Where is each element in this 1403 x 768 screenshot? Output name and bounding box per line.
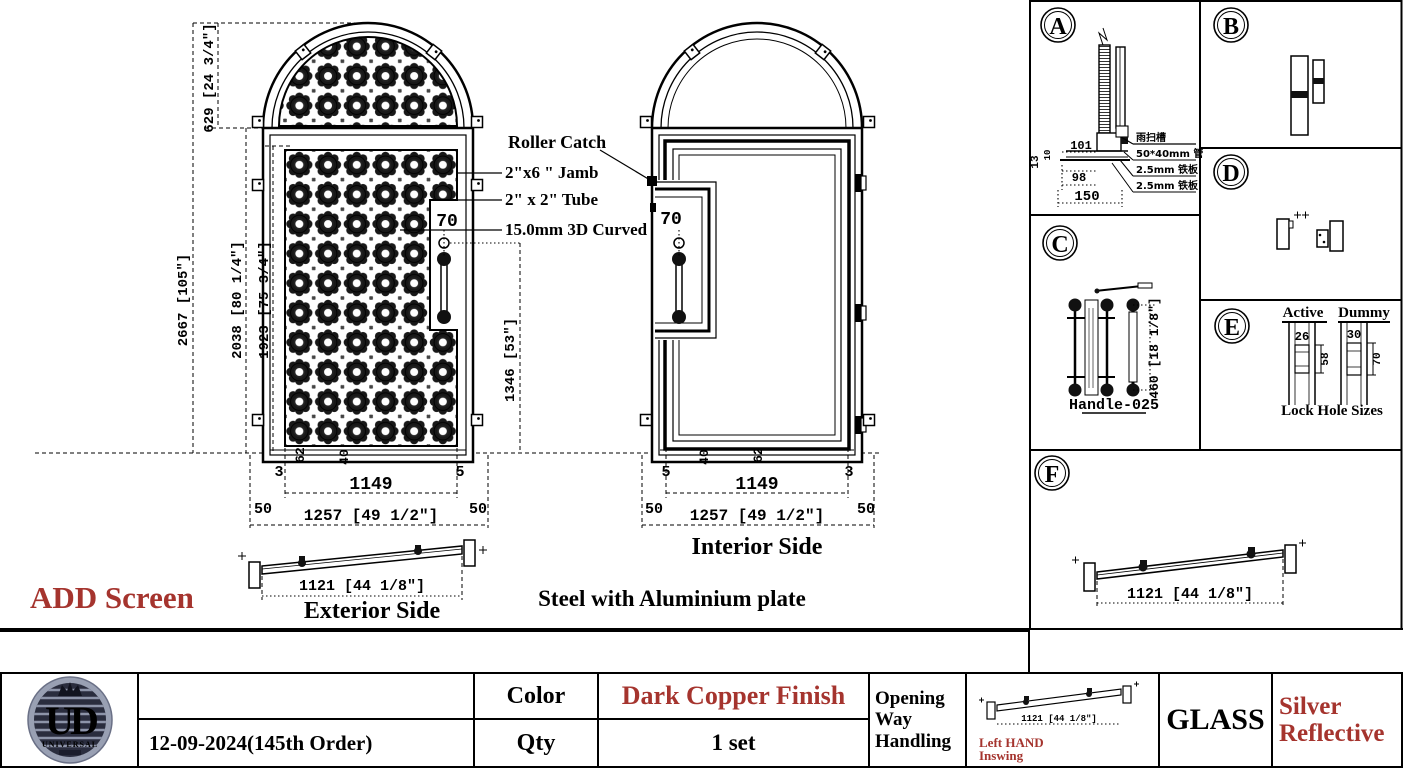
swing-line-2: Inswing [979, 749, 1044, 763]
exterior-door-drawing: 70 [253, 23, 521, 462]
add-screen-note: ADD Screen [30, 580, 194, 615]
detail-f-letter: F [1045, 462, 1060, 488]
detail-b: B [1214, 8, 1324, 135]
exterior-sill-drawing: 1121 [44 1/8"] [238, 540, 487, 600]
dummy-height-dim: 70 [1372, 352, 1384, 365]
dim-handle-height: 1346 [53"] [503, 318, 519, 402]
dim-70-interior: 70 [660, 210, 682, 230]
detail-d-letter: D [1222, 161, 1239, 187]
dim-1257-int: 1257 [49 1/2"] [690, 507, 824, 525]
labels-cell: Color Qty [473, 674, 597, 766]
dummy-width-dim: 30 [1347, 328, 1361, 342]
dim-total-height: 2667 [105"] [176, 254, 192, 346]
title-block: UD UNIVERSAL 12-09-2024(145th Order) Col… [0, 672, 1403, 768]
dim-1149-int: 1149 [735, 475, 778, 495]
swing-handle-graphic: 1121 [44 1/8"] [969, 676, 1158, 728]
active-label: Active [1283, 305, 1324, 321]
detail-a-letter: A [1049, 14, 1067, 40]
tube-label: 2" x 2" Tube [505, 190, 599, 209]
detail-c-letter: C [1051, 232, 1068, 258]
active-lock-hole: 26 58 [1289, 322, 1332, 405]
detail-a-note-1: 雨扫槽 [1136, 131, 1166, 144]
detail-f: F 1121 [44 1/8"] [1035, 456, 1306, 607]
dim-50-left-int: 50 [645, 501, 663, 518]
company-logo: UD UNIVERSAL [2, 674, 137, 766]
glass-value-line-1: Silver [1279, 693, 1401, 721]
detail-c: C 460 [18 1/8"] Handle-025 [1043, 226, 1162, 414]
opening-way-cell: Opening Way Handling [868, 674, 965, 766]
glass-label-cell: GLASS [1158, 674, 1271, 766]
opening-line-3: Handling [875, 731, 965, 752]
detail-e-letter: E [1224, 315, 1240, 341]
dim-40-int: 40 [697, 449, 712, 465]
detail-e: E Active Dummy 26 58 30 70 Lock Hole Siz… [1215, 305, 1390, 419]
handle-side-view [1127, 299, 1140, 397]
dummy-lock-hole: 30 70 [1341, 322, 1384, 405]
curved-glass-label: 15.0mm 3D Curved [505, 220, 648, 239]
detail-a-dim-101: 101 [1070, 139, 1092, 153]
dim-1149: 1149 [349, 475, 392, 495]
glass-value-cell: Silver Reflective [1271, 674, 1401, 766]
swing-label: Left HAND Inswing [979, 736, 1044, 763]
dim-62-int: 62 [751, 447, 766, 463]
detail-d: D [1214, 155, 1343, 251]
swing-dim: 1121 [44 1/8"] [1021, 714, 1097, 724]
detail-b-letter: B [1223, 14, 1239, 40]
blank-cell [139, 674, 473, 720]
logo-monogram: UD [45, 698, 97, 743]
detail-c-dim: 460 [18 1/8"] [1147, 297, 1162, 398]
interior-door-drawing: 70 [641, 23, 875, 462]
color-label: Color [475, 674, 597, 720]
dim-3: 3 [274, 464, 283, 481]
drawing-canvas: 70 2667 [105"] 629 [24 3/4"] 2038 [80 1/… [0, 0, 1403, 630]
dim-40: 40 [337, 449, 352, 465]
exterior-side-caption: Exterior Side [304, 598, 441, 624]
opening-line-2: Way [875, 709, 965, 730]
detail-a-dim-10: 10 [1043, 150, 1053, 161]
date-cell: 12-09-2024(145th Order) [137, 674, 473, 766]
dim-3-int: 3 [844, 464, 853, 481]
opening-line-1: Opening [875, 688, 965, 709]
material-note: Steel with Aluminium plate [538, 586, 806, 611]
swing-line-1: Left HAND [979, 736, 1044, 750]
qty-value: 1 set [599, 720, 868, 766]
dim-70-exterior: 70 [436, 212, 458, 232]
dim-sill-length: 1121 [44 1/8"] [299, 578, 425, 595]
detail-a-notes: 雨扫槽 50*40mm 管 2.5mm 铁板 2.5mm 铁板 [1112, 131, 1203, 192]
jamb-label: 2"x6 " Jamb [505, 163, 599, 182]
roller-catch-keeper [647, 176, 657, 186]
logo-name: UNIVERSAL [41, 740, 97, 749]
notice-box: Production Lead time will not start unti… [0, 630, 1030, 672]
dim-2038: 2038 [80 1/4"] [230, 241, 246, 359]
detail-a-note-4: 2.5mm 铁板 [1136, 179, 1199, 192]
lock-hole-sizes-caption: Lock Hole Sizes [1281, 403, 1383, 419]
detail-a-dim-98: 98 [1072, 171, 1086, 185]
dummy-label: Dummy [1338, 305, 1390, 321]
handle-name: Handle-025 [1069, 397, 1159, 414]
cad-drawing-sheet: 70 2667 [105"] 629 [24 3/4"] 2038 [80 1/… [0, 0, 1403, 768]
dim-50-left: 50 [254, 501, 272, 518]
dim-arch-height: 629 [24 3/4"] [202, 23, 218, 132]
color-value: Dark Copper Finish [599, 674, 868, 720]
interior-side-caption: Interior Side [692, 534, 823, 560]
active-height-dim: 58 [1320, 352, 1332, 366]
handle-front-view [1067, 299, 1115, 397]
roller-catch-label: Roller Catch [508, 132, 606, 152]
dim-62: 62 [293, 447, 308, 463]
detail-a-dim-13: 13 [1030, 155, 1042, 169]
active-width-dim: 26 [1295, 330, 1309, 344]
dim-50-right-int: 50 [857, 501, 875, 518]
glass-value-line-2: Reflective [1279, 720, 1401, 748]
dim-50-right: 50 [469, 501, 487, 518]
dim-1257: 1257 [49 1/2"] [304, 507, 438, 525]
detail-a: A 13 10 101 98 150 雨扫槽 50*40mm 管 2.5mm 铁… [1030, 8, 1203, 207]
detail-a-note-3: 2.5mm 铁板 [1136, 163, 1199, 176]
order-date: 12-09-2024(145th Order) [139, 720, 473, 766]
swing-cell: 1121 [44 1/8"] Left HAND Inswing [965, 674, 1158, 766]
qty-label: Qty [475, 720, 597, 766]
values-cell: Dark Copper Finish 1 set [597, 674, 868, 766]
detail-f-dim: 1121 [44 1/8"] [1127, 586, 1253, 603]
logo-graphic: UD UNIVERSAL [20, 674, 120, 766]
dim-1923: 1923 [75 3/4"] [257, 241, 273, 359]
detail-a-note-2: 50*40mm 管 [1136, 147, 1203, 160]
